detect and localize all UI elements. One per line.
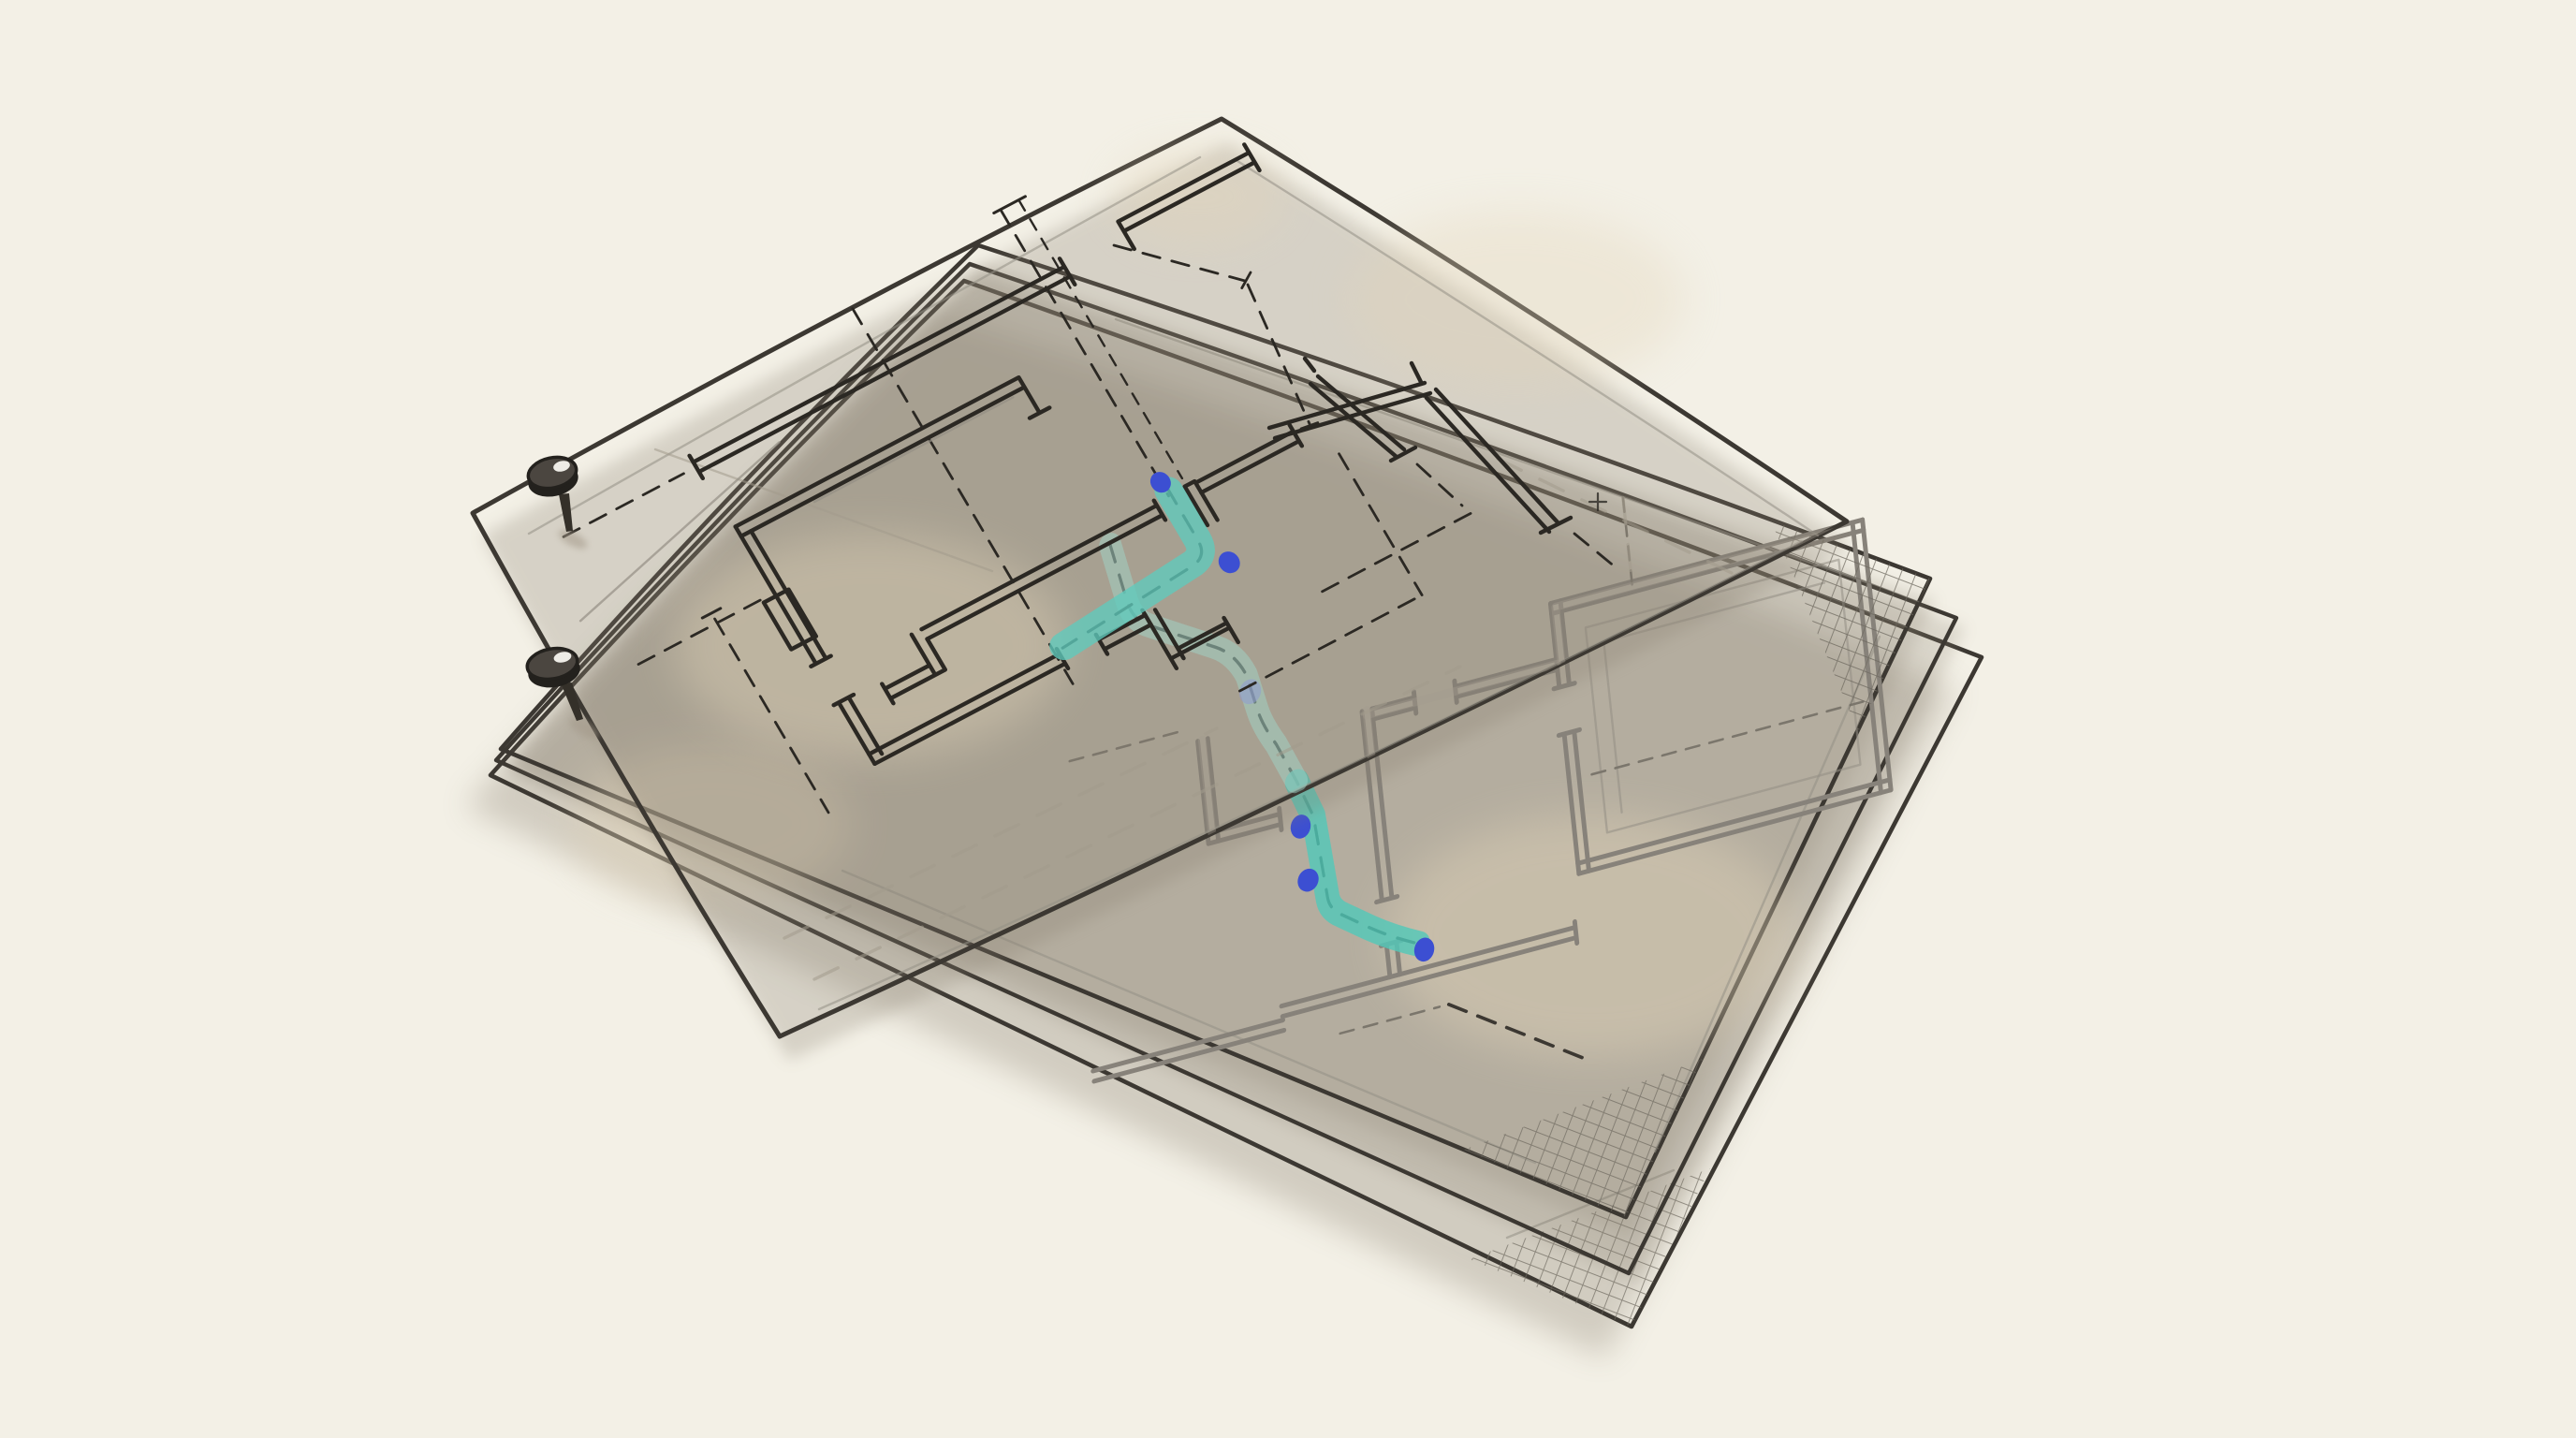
illustration-canvas: Hand-drawn illustration of pinned, stack… bbox=[0, 0, 2576, 1438]
paper-blotch bbox=[1385, 814, 1797, 1058]
paper-blotch bbox=[674, 534, 1067, 758]
paper-blotch bbox=[1348, 211, 1685, 389]
